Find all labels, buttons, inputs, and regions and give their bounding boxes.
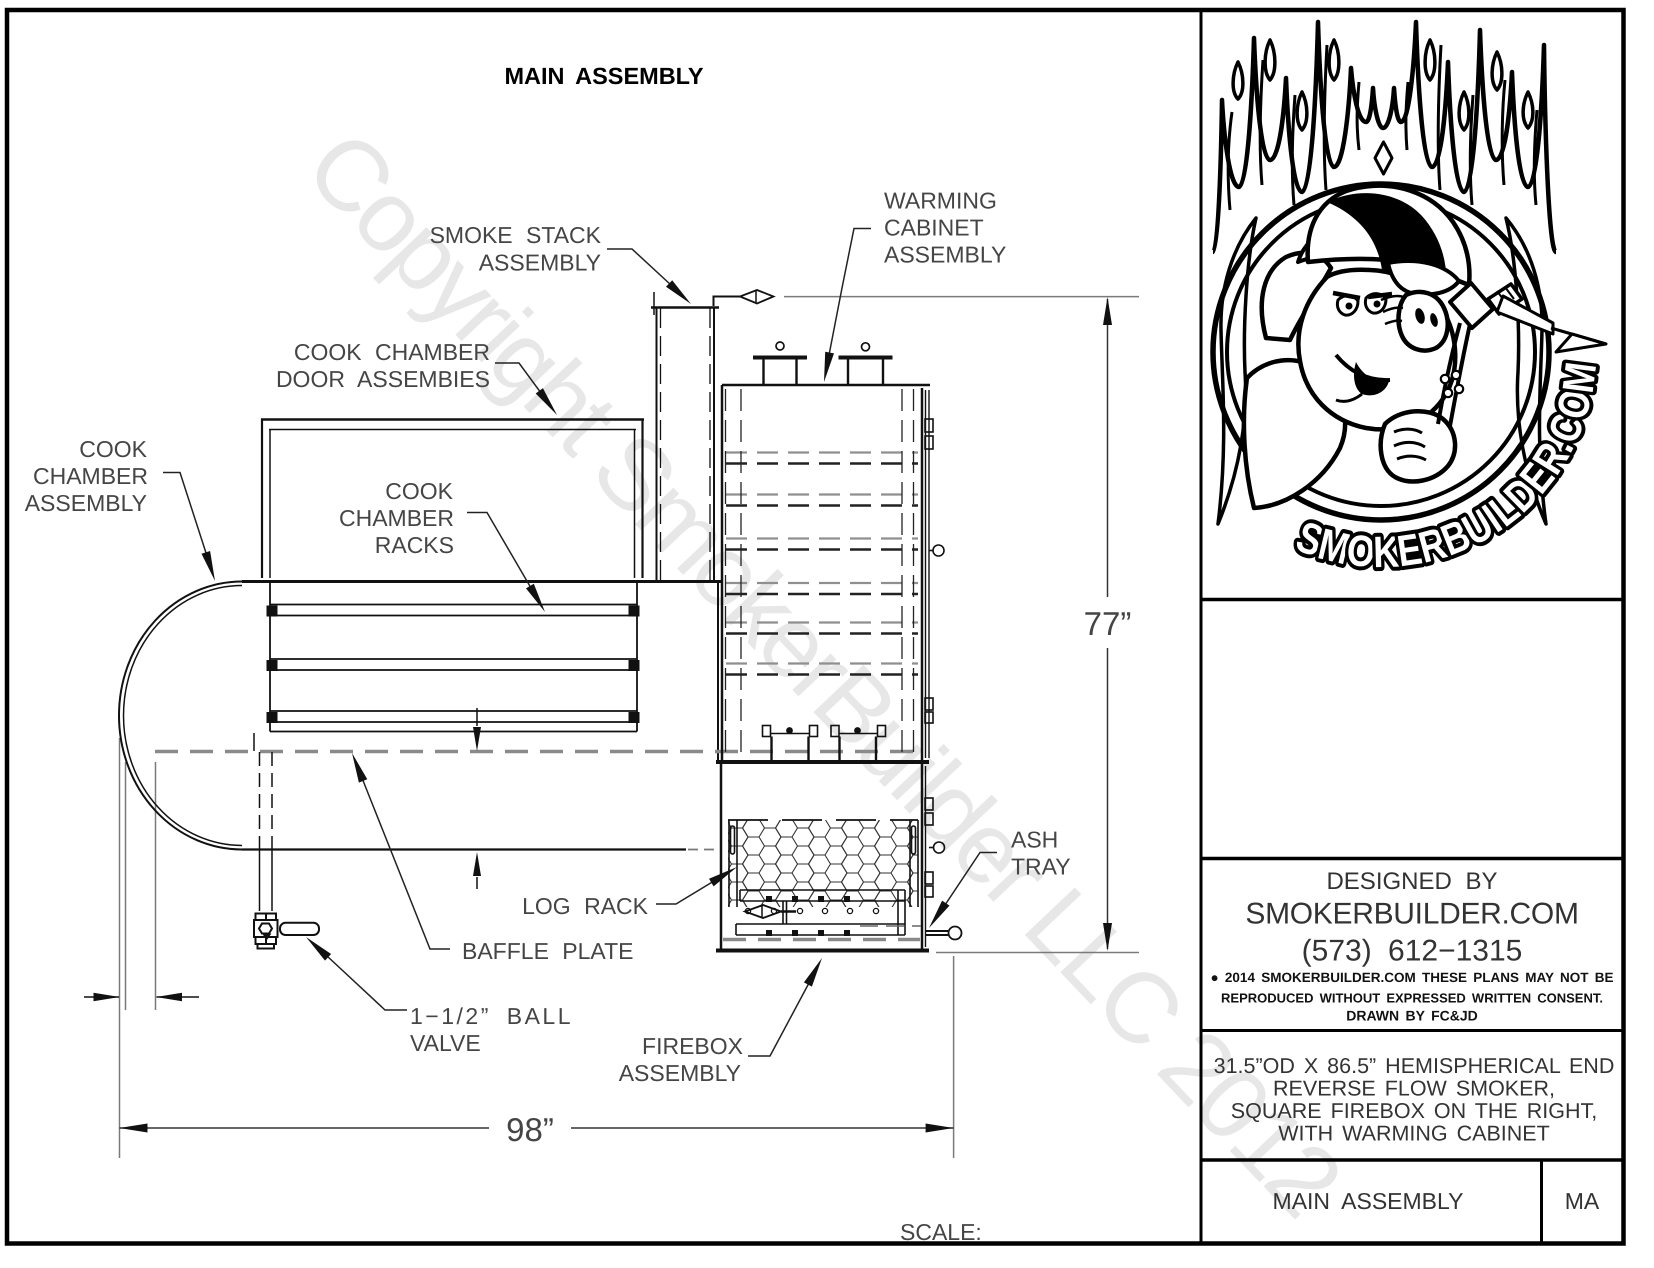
svg-text:CHAMBER: CHAMBER — [339, 505, 454, 531]
svg-text:MAIN ASSEMBLY: MAIN ASSEMBLY — [504, 63, 703, 89]
svg-text:TRAY: TRAY — [1011, 854, 1071, 880]
svg-text:FIREBOX: FIREBOX — [642, 1033, 743, 1059]
svg-text:DESIGNED BY: DESIGNED BY — [1326, 868, 1497, 895]
svg-text:ASSEMBLY: ASSEMBLY — [884, 242, 1006, 268]
svg-text:REPRODUCED WITHOUT EXPRESSED W: REPRODUCED WITHOUT EXPRESSED WRITTEN CON… — [1221, 991, 1603, 1006]
svg-text:RACKS: RACKS — [375, 532, 454, 558]
svg-text:(573) 612−1315: (573) 612−1315 — [1302, 935, 1523, 968]
svg-text:ASSEMBLY: ASSEMBLY — [25, 490, 147, 516]
svg-text:DRAWN BY FC&JD: DRAWN BY FC&JD — [1346, 1008, 1478, 1024]
svg-text:COOK CHAMBER: COOK CHAMBER — [294, 339, 490, 365]
svg-text:REVERSE FLOW SMOKER,: REVERSE FLOW SMOKER, — [1273, 1077, 1555, 1101]
svg-text:COOK: COOK — [385, 478, 453, 504]
svg-text:ASH: ASH — [1011, 827, 1058, 853]
svg-text:● 2014 SMOKERBUILDER.COM THESE: ● 2014 SMOKERBUILDER.COM THESE PLANS MAY… — [1211, 970, 1614, 985]
svg-text:98”: 98” — [506, 1111, 554, 1148]
svg-text:SMOKERBUILDER.COM: SMOKERBUILDER.COM — [1245, 898, 1578, 931]
svg-text:BAFFLE PLATE: BAFFLE PLATE — [462, 938, 633, 964]
svg-text:MA: MA — [1565, 1188, 1600, 1214]
svg-text:LOG RACK: LOG RACK — [522, 893, 649, 919]
svg-text:31.5”OD X 86.5” HEMISPHERICAL: 31.5”OD X 86.5” HEMISPHERICAL END — [1214, 1054, 1615, 1078]
svg-text:ASSEMBLY: ASSEMBLY — [619, 1060, 741, 1086]
svg-text:WARMING: WARMING — [884, 188, 997, 214]
svg-text:SCALE:: SCALE: — [900, 1219, 982, 1245]
svg-text:SMOKE STACK: SMOKE STACK — [430, 222, 602, 248]
svg-text:SQUARE FIREBOX ON THE RIGHT,: SQUARE FIREBOX ON THE RIGHT, — [1231, 1099, 1597, 1123]
svg-text:WITH WARMING CABINET: WITH WARMING CABINET — [1278, 1122, 1550, 1146]
svg-text:VALVE: VALVE — [410, 1030, 481, 1056]
svg-text:77”: 77” — [1084, 605, 1132, 642]
svg-text:CHAMBER: CHAMBER — [33, 463, 148, 489]
svg-text:DOOR ASSEMBIES: DOOR ASSEMBIES — [276, 366, 490, 392]
svg-text:COOK: COOK — [79, 436, 147, 462]
svg-text:1−1/2” BALL: 1−1/2” BALL — [410, 1003, 573, 1029]
svg-text:CABINET: CABINET — [884, 215, 984, 241]
svg-text:MAIN ASSEMBLY: MAIN ASSEMBLY — [1273, 1188, 1464, 1214]
svg-text:ASSEMBLY: ASSEMBLY — [479, 250, 601, 276]
